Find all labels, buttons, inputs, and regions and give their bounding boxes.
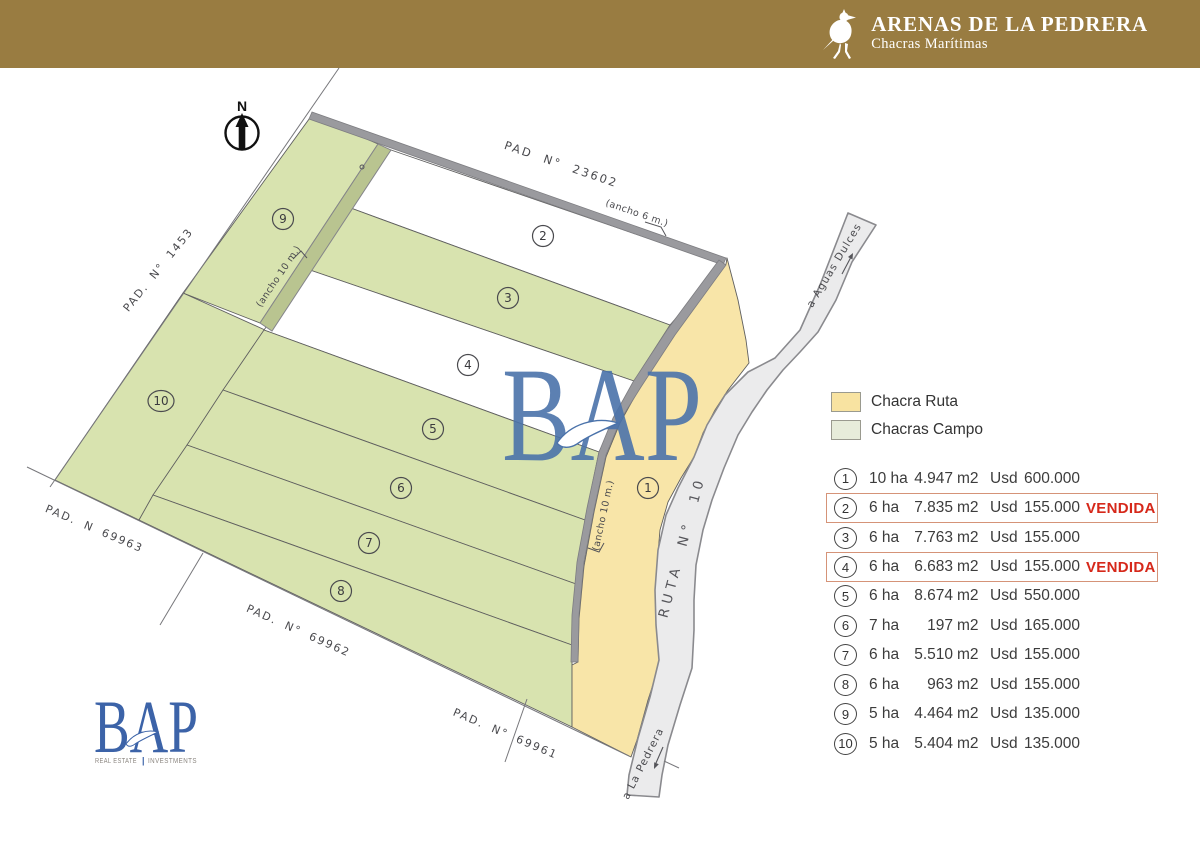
legend-item: Chacras Campo [831,419,983,440]
lot-price: 155.000 [1024,499,1080,517]
lot-number-badge: 8 [834,674,857,696]
lot-number-badge: 9 [834,703,857,725]
lot-m2-value: 963 [895,676,953,694]
price-list-row: 3 6 ha 7.763 m2 Usd 155.000 [826,523,1158,552]
lot-m2-value: 197 [895,617,953,635]
lot-m2-unit: m2 [957,735,979,753]
lot-currency: Usd [990,499,1018,517]
lot-m2-unit: m2 [957,676,979,694]
price-list-row: 2 6 ha 7.835 m2 Usd 155.000 VENDIDA [826,493,1158,522]
lot-price: 550.000 [1024,587,1080,605]
lot-m2-value: 5.510 [895,646,953,664]
plan-poster: ARENAS DE LA PEDRERA Chacras Marítimas [0,0,1200,851]
legend-swatch [831,420,861,440]
price-list: 1 10 ha 4.947 m2 Usd 600.000 2 6 ha 7.83… [826,464,1158,758]
sold-badge: VENDIDA [1086,559,1156,576]
lot-price: 600.000 [1024,470,1080,488]
lot-m2-value: 4.464 [895,705,953,723]
lot-currency: Usd [990,646,1018,664]
legend: Chacra Ruta Chacras Campo [831,391,983,447]
lot-m2-unit: m2 [957,646,979,664]
logo-tagline-right: INVESTMENTS [148,756,197,765]
logo-tagline-left: REAL ESTATE [95,756,137,765]
north-label: N [237,98,247,114]
lot-price: 135.000 [1024,705,1080,723]
bap-watermark-text: BAP [502,341,702,490]
lot-m2-unit: m2 [957,470,979,488]
lot-number-1: 1 [644,481,652,495]
lot-number-5: 5 [429,422,437,436]
lot-number-4: 4 [464,358,472,372]
boundary-south-ext [664,761,679,768]
lot-price: 155.000 [1024,529,1080,547]
lot-currency: Usd [990,470,1018,488]
lot-m2-unit: m2 [957,617,979,635]
price-list-row: 4 6 ha 6.683 m2 Usd 155.000 VENDIDA [826,552,1158,581]
lot-number-badge: 2 [834,497,857,519]
lot-m2-value: 7.835 [895,499,953,517]
lot-price: 165.000 [1024,617,1080,635]
lot-currency: Usd [990,735,1018,753]
lot-number-10: 10 [153,394,168,408]
lot-number-2: 2 [539,229,547,243]
lot-currency: Usd [990,705,1018,723]
bap-logo: BAP REAL ESTATE | INVESTMENTS [94,686,198,769]
lot-number-badge: 7 [834,644,857,666]
lot-currency: Usd [990,529,1018,547]
lot-price: 135.000 [1024,735,1080,753]
divider-69963-69962 [160,553,203,625]
lot-number-badge: 10 [834,733,857,755]
price-list-row: 1 10 ha 4.947 m2 Usd 600.000 [826,464,1158,493]
lot-number-badge: 5 [834,585,857,607]
legend-item: Chacra Ruta [831,391,983,412]
legend-swatch [831,392,861,412]
lot-m2-unit: m2 [957,705,979,723]
sold-badge: VENDIDA [1086,500,1156,517]
lot-currency: Usd [990,587,1018,605]
price-list-row: 5 6 ha 8.674 m2 Usd 550.000 [826,582,1158,611]
lot-m2-value: 7.763 [895,529,953,547]
lot-number-7: 7 [365,536,373,550]
price-list-row: 10 5 ha 5.404 m2 Usd 135.000 [826,729,1158,758]
lot-number-8: 8 [337,584,345,598]
lot-m2-value: 6.683 [895,558,953,576]
legend-label: Chacra Ruta [871,393,958,411]
lot-m2-unit: m2 [957,558,979,576]
lot-number-badge: 3 [834,527,857,549]
lot-currency: Usd [990,676,1018,694]
lot-m2-unit: m2 [957,529,979,547]
lot-m2-unit: m2 [957,499,979,517]
lot-number-badge: 1 [834,468,857,490]
lot-number-9: 9 [279,212,287,226]
bap-watermark: BAP [502,341,702,490]
logo-tagline-separator: | [142,756,145,766]
lot-m2-value: 4.947 [895,470,953,488]
north-arrow: N [226,98,259,150]
pad-label-69961: PAD. N° 69961 [451,706,560,762]
lot-currency: Usd [990,617,1018,635]
lot-number-badge: 6 [834,615,857,637]
lot-price: 155.000 [1024,676,1080,694]
lot-m2-value: 8.674 [895,587,953,605]
lot-currency: Usd [990,558,1018,576]
lot-price: 155.000 [1024,646,1080,664]
legend-label: Chacras Campo [871,421,983,439]
lot-number-badge: 4 [834,556,857,578]
lot-number-3: 3 [504,291,512,305]
lot-number-6: 6 [397,481,405,495]
pad-label-23602: PAD N° 23602 [502,138,620,190]
price-list-row: 7 6 ha 5.510 m2 Usd 155.000 [826,641,1158,670]
price-list-row: 8 6 ha 963 m2 Usd 155.000 [826,670,1158,699]
lot-m2-value: 5.404 [895,735,953,753]
price-list-row: 9 5 ha 4.464 m2 Usd 135.000 [826,700,1158,729]
lot-m2-unit: m2 [957,587,979,605]
lot-price: 155.000 [1024,558,1080,576]
price-list-row: 6 7 ha 197 m2 Usd 165.000 [826,611,1158,640]
